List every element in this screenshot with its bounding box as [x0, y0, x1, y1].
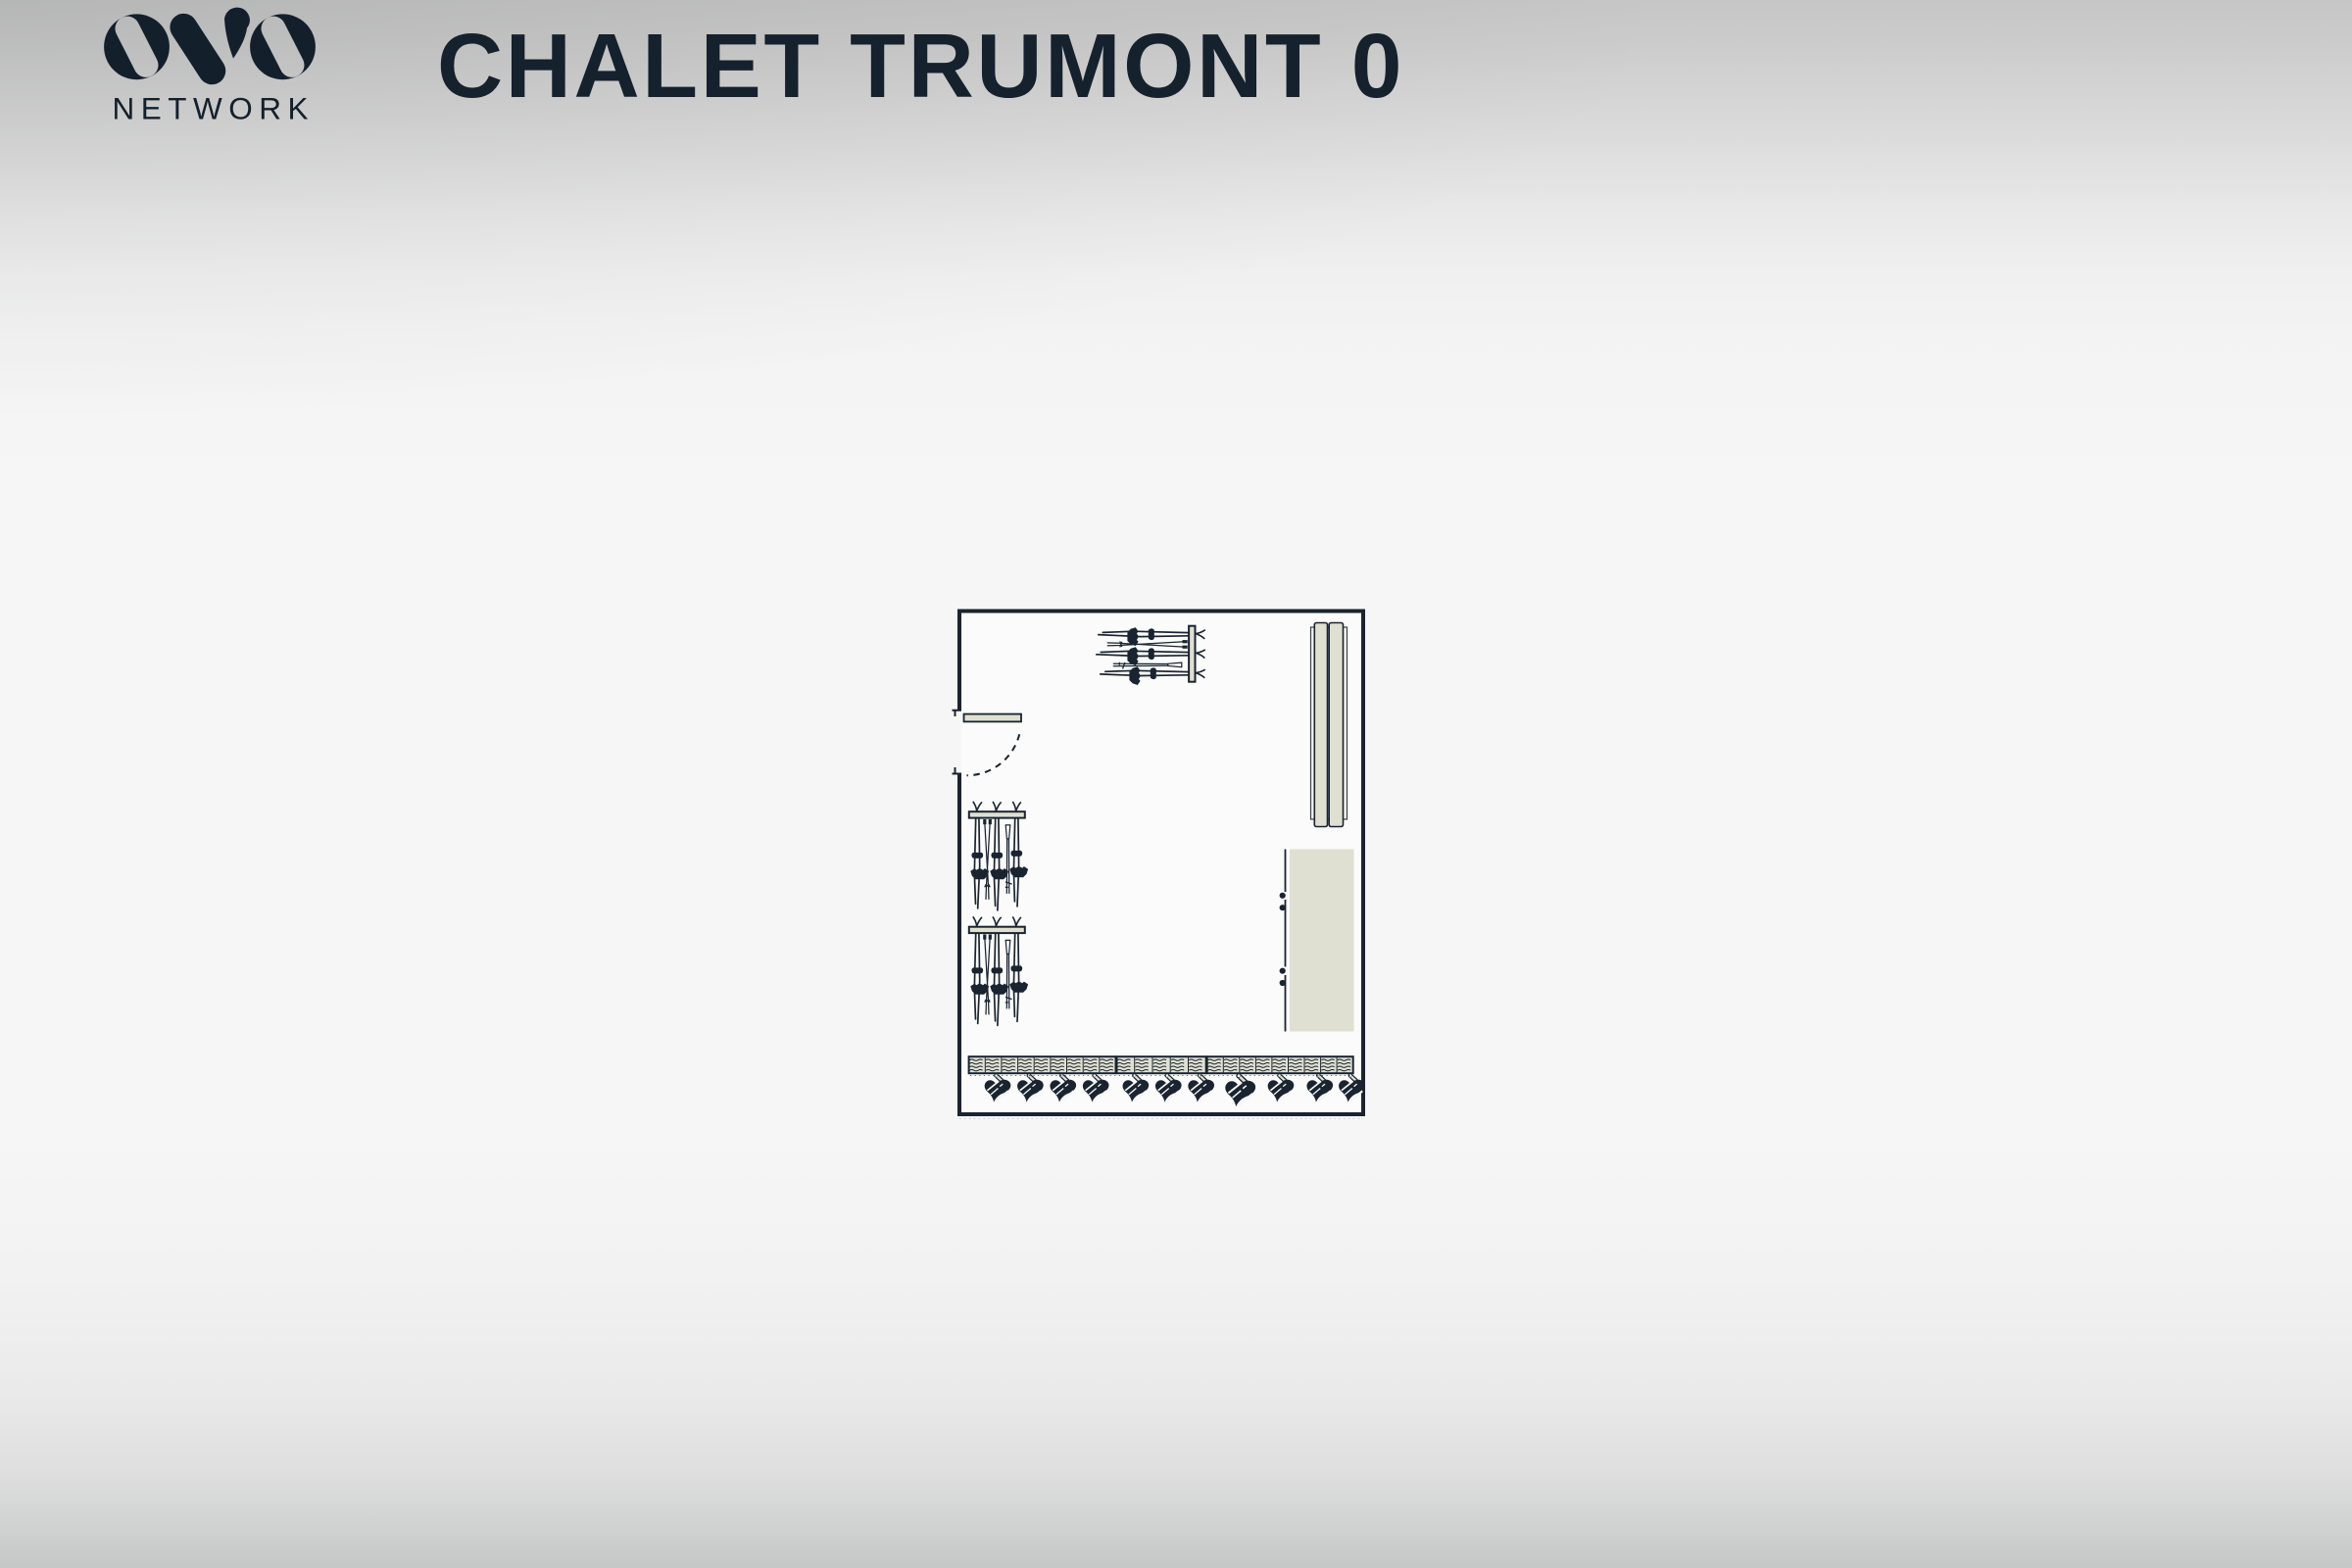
svg-text:NETWORK: NETWORK — [113, 91, 316, 123]
